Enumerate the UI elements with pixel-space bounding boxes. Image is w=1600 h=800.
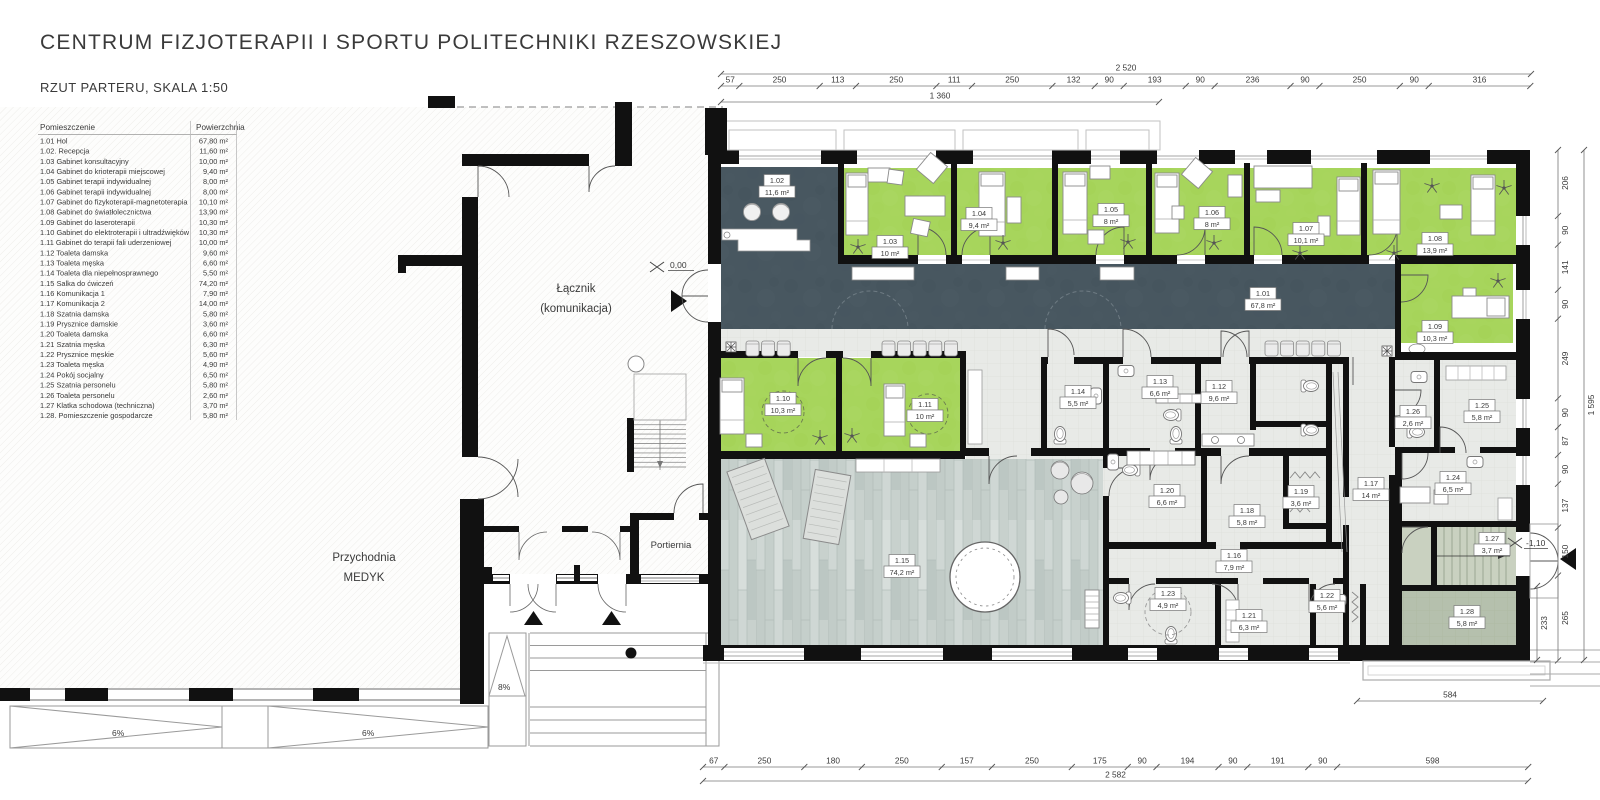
svg-text:5,5 m²: 5,5 m² [1068, 399, 1089, 408]
svg-text:90: 90 [1410, 75, 1420, 85]
svg-text:8 m²: 8 m² [1205, 220, 1220, 229]
svg-text:6%: 6% [112, 728, 125, 738]
svg-text:57: 57 [726, 75, 736, 85]
svg-text:2 520: 2 520 [1116, 63, 1137, 73]
svg-text:74,2 m²: 74,2 m² [890, 568, 915, 577]
svg-text:2,60 m²: 2,60 m² [203, 391, 229, 400]
svg-text:1.14 Toaleta dla niepełnospraw: 1.14 Toaleta dla niepełnosprawnego [40, 269, 158, 278]
svg-text:1.19 Prysznice damskie: 1.19 Prysznice damskie [40, 320, 118, 329]
svg-text:1.04 Gabinet do krioterapii mi: 1.04 Gabinet do krioterapii miejscowej [40, 167, 165, 176]
svg-text:250: 250 [1005, 75, 1019, 85]
svg-text:1.15 Salka do ćwiczeń: 1.15 Salka do ćwiczeń [40, 279, 114, 288]
svg-text:1.26 Toaleta personelu: 1.26 Toaleta personelu [40, 391, 115, 400]
svg-text:10,10 m²: 10,10 m² [199, 198, 229, 207]
svg-text:1.22 Prysznice męskie: 1.22 Prysznice męskie [40, 350, 114, 359]
svg-text:180: 180 [826, 756, 840, 766]
svg-text:1.25 Szatnia personelu: 1.25 Szatnia personelu [40, 381, 116, 390]
svg-text:10,00 m²: 10,00 m² [199, 157, 229, 166]
svg-text:5,80 m²: 5,80 m² [203, 411, 229, 420]
svg-text:250: 250 [757, 756, 771, 766]
svg-text:1.05: 1.05 [1104, 205, 1118, 214]
svg-text:233: 233 [1539, 616, 1549, 630]
svg-text:9,40 m²: 9,40 m² [203, 167, 229, 176]
svg-text:1.16 Komunikacja 1: 1.16 Komunikacja 1 [40, 289, 105, 298]
svg-text:250: 250 [1353, 75, 1367, 85]
svg-text:10,1 m²: 10,1 m² [1294, 236, 1319, 245]
svg-text:316: 316 [1473, 75, 1487, 85]
svg-text:CENTRUM FIZJOTERAPII I SPORTU: CENTRUM FIZJOTERAPII I SPORTU POLITECHNI… [40, 31, 782, 54]
svg-text:1.23 Toaleta męska: 1.23 Toaleta męska [40, 360, 105, 369]
svg-text:1.06 Gabinet terapii indywidua: 1.06 Gabinet terapii indywidualnej [40, 187, 151, 196]
svg-text:1 360: 1 360 [930, 91, 951, 101]
svg-text:1.24: 1.24 [1446, 473, 1460, 482]
svg-text:10 m²: 10 m² [881, 249, 900, 258]
svg-text:90: 90 [1300, 75, 1310, 85]
svg-text:1.11: 1.11 [918, 400, 932, 409]
svg-text:5,60 m²: 5,60 m² [203, 350, 229, 359]
svg-text:1.22: 1.22 [1320, 591, 1334, 600]
svg-text:6,60 m²: 6,60 m² [203, 330, 229, 339]
svg-text:1.06: 1.06 [1205, 208, 1219, 217]
svg-text:1.16: 1.16 [1227, 551, 1241, 560]
svg-text:250: 250 [889, 75, 903, 85]
svg-text:67,8 m²: 67,8 m² [1251, 301, 1276, 310]
svg-text:1.26: 1.26 [1406, 407, 1420, 416]
svg-text:1.28: 1.28 [1460, 607, 1474, 616]
svg-text:150: 150 [1560, 544, 1570, 558]
svg-text:9,4 m²: 9,4 m² [969, 221, 990, 230]
svg-text:90: 90 [1560, 299, 1570, 309]
svg-text:13,9 m²: 13,9 m² [1423, 246, 1448, 255]
svg-text:1.28. Pomieszczenie gospodarcz: 1.28. Pomieszczenie gospodarcze [40, 411, 153, 420]
svg-text:1.15: 1.15 [895, 556, 909, 565]
svg-text:67,80 m²: 67,80 m² [199, 137, 229, 146]
svg-text:1.03: 1.03 [883, 237, 897, 246]
svg-text:8 m²: 8 m² [1104, 217, 1119, 226]
svg-text:584: 584 [1443, 690, 1457, 700]
svg-text:RZUT PARTERU, SKALA 1:50: RZUT PARTERU, SKALA 1:50 [40, 80, 228, 95]
svg-text:90: 90 [1228, 756, 1238, 766]
svg-text:5,8 m²: 5,8 m² [1472, 413, 1493, 422]
svg-text:1.18: 1.18 [1240, 506, 1254, 515]
svg-text:191: 191 [1271, 756, 1285, 766]
svg-text:1.13: 1.13 [1153, 377, 1167, 386]
svg-text:1.19: 1.19 [1294, 487, 1308, 496]
svg-text:9,60 m²: 9,60 m² [203, 248, 229, 257]
svg-text:250: 250 [1025, 756, 1039, 766]
svg-text:1.07 Gabinet do fizykoterapii-: 1.07 Gabinet do fizykoterapii-magnetoter… [40, 198, 188, 207]
svg-text:Powierzchnia: Powierzchnia [196, 123, 245, 132]
svg-text:Pomieszczenie: Pomieszczenie [40, 123, 96, 132]
svg-text:1.17: 1.17 [1364, 479, 1378, 488]
svg-text:1.20 Toaleta damska: 1.20 Toaleta damska [40, 330, 109, 339]
svg-text:157: 157 [960, 756, 974, 766]
svg-text:11,6 m²: 11,6 m² [765, 188, 790, 197]
svg-text:Łącznik: Łącznik [557, 283, 596, 295]
svg-text:10,3 m²: 10,3 m² [1423, 334, 1448, 343]
svg-text:250: 250 [773, 75, 787, 85]
svg-text:8%: 8% [498, 682, 511, 692]
svg-text:5,6 m²: 5,6 m² [1317, 603, 1338, 612]
svg-text:206: 206 [1560, 176, 1570, 190]
svg-text:1.08 Gabinet do światłolecznic: 1.08 Gabinet do światłolecznictwa [40, 208, 152, 217]
svg-text:4,90 m²: 4,90 m² [203, 360, 229, 369]
svg-text:194: 194 [1181, 756, 1195, 766]
svg-text:5,50 m²: 5,50 m² [203, 269, 229, 278]
svg-text:598: 598 [1426, 756, 1440, 766]
svg-text:7,9 m²: 7,9 m² [1224, 563, 1245, 572]
svg-text:1.02: 1.02 [770, 176, 784, 185]
svg-text:87: 87 [1560, 436, 1570, 446]
svg-text:1.02. Recepcja: 1.02. Recepcja [40, 147, 90, 156]
svg-text:1.01 Hol: 1.01 Hol [40, 137, 68, 146]
svg-text:6,5 m²: 6,5 m² [1443, 485, 1464, 494]
svg-text:137: 137 [1560, 498, 1570, 512]
svg-text:1.11 Gabinet do terapii fali u: 1.11 Gabinet do terapii fali uderzeniowe… [40, 238, 172, 247]
svg-text:6,6 m²: 6,6 m² [1150, 389, 1171, 398]
svg-text:90: 90 [1560, 225, 1570, 235]
svg-text:175: 175 [1093, 756, 1107, 766]
svg-text:2,6 m²: 2,6 m² [1403, 419, 1424, 428]
svg-text:5,80 m²: 5,80 m² [203, 309, 229, 318]
svg-text:8,00 m²: 8,00 m² [203, 177, 229, 186]
svg-text:1.21 Szatnia męska: 1.21 Szatnia męska [40, 340, 106, 349]
svg-text:1.27: 1.27 [1485, 534, 1499, 543]
svg-text:Portiernia: Portiernia [651, 540, 692, 551]
svg-text:249: 249 [1560, 351, 1570, 365]
svg-text:1.20: 1.20 [1160, 486, 1174, 495]
svg-text:10 m²: 10 m² [916, 412, 935, 421]
svg-text:1.23: 1.23 [1161, 589, 1175, 598]
svg-text:Przychodnia: Przychodnia [332, 552, 396, 564]
svg-text:2 582: 2 582 [1105, 770, 1126, 780]
svg-text:265: 265 [1560, 611, 1570, 625]
svg-text:250: 250 [895, 756, 909, 766]
svg-text:4,9 m²: 4,9 m² [1158, 601, 1179, 610]
svg-text:90: 90 [1105, 75, 1115, 85]
svg-text:1.25: 1.25 [1475, 401, 1489, 410]
svg-text:5,8 m²: 5,8 m² [1237, 518, 1258, 527]
svg-text:1.24 Pokój socjalny: 1.24 Pokój socjalny [40, 370, 104, 379]
svg-text:MEDYK: MEDYK [344, 572, 385, 584]
svg-text:1.13 Toaleta męska: 1.13 Toaleta męska [40, 259, 105, 268]
svg-text:74,20 m²: 74,20 m² [199, 279, 229, 288]
svg-text:6,60 m²: 6,60 m² [203, 259, 229, 268]
svg-text:1.09 Gabinet do laseroterapii: 1.09 Gabinet do laseroterapii [40, 218, 135, 227]
svg-text:1.21: 1.21 [1242, 611, 1256, 620]
svg-text:1.12 Toaleta damska: 1.12 Toaleta damska [40, 248, 109, 257]
svg-text:141: 141 [1560, 260, 1570, 274]
svg-text:111: 111 [948, 75, 961, 85]
svg-text:3,60 m²: 3,60 m² [203, 320, 229, 329]
svg-text:10,00 m²: 10,00 m² [199, 238, 229, 247]
svg-text:14 m²: 14 m² [1362, 491, 1381, 500]
svg-text:1.14: 1.14 [1071, 387, 1085, 396]
svg-text:8,00 m²: 8,00 m² [203, 187, 229, 196]
svg-text:6,50 m²: 6,50 m² [203, 370, 229, 379]
svg-text:3,70 m²: 3,70 m² [203, 401, 229, 410]
svg-text:1.05 Gabinet terapii indywidua: 1.05 Gabinet terapii indywidualnej [40, 177, 151, 186]
svg-text:6%: 6% [362, 728, 375, 738]
svg-text:1.18 Szatnia damska: 1.18 Szatnia damska [40, 309, 110, 318]
svg-text:7,90 m²: 7,90 m² [203, 289, 229, 298]
svg-text:1.12: 1.12 [1212, 382, 1226, 391]
svg-text:1.01: 1.01 [1256, 289, 1270, 298]
svg-text:1.27 Klatka schodowa (technicz: 1.27 Klatka schodowa (techniczna) [40, 401, 155, 410]
svg-text:10,30 m²: 10,30 m² [199, 218, 229, 227]
svg-text:3,7 m²: 3,7 m² [1482, 546, 1503, 555]
svg-text:1.07: 1.07 [1299, 224, 1313, 233]
svg-text:6,6 m²: 6,6 m² [1157, 498, 1178, 507]
svg-text:90: 90 [1137, 756, 1147, 766]
svg-text:6,3 m²: 6,3 m² [1239, 623, 1260, 632]
svg-text:113: 113 [831, 75, 845, 85]
svg-text:193: 193 [1148, 75, 1162, 85]
svg-text:1.03 Gabinet konsultacyjny: 1.03 Gabinet konsultacyjny [40, 157, 129, 166]
svg-text:11,60 m²: 11,60 m² [199, 147, 228, 156]
svg-text:10,3 m²: 10,3 m² [771, 406, 796, 415]
svg-text:1 595: 1 595 [1586, 394, 1596, 415]
svg-text:90: 90 [1560, 408, 1570, 418]
svg-text:1.08: 1.08 [1428, 234, 1442, 243]
svg-text:10,30 m²: 10,30 m² [199, 228, 229, 237]
svg-text:13,90 m²: 13,90 m² [199, 208, 229, 217]
svg-text:1.09: 1.09 [1428, 322, 1442, 331]
svg-text:5,80 m²: 5,80 m² [203, 381, 229, 390]
svg-text:0,00: 0,00 [670, 260, 687, 270]
svg-text:14,00 m²: 14,00 m² [199, 299, 229, 308]
svg-text:90: 90 [1196, 75, 1206, 85]
svg-text:3,6 m²: 3,6 m² [1291, 499, 1312, 508]
svg-text:5,8 m²: 5,8 m² [1457, 619, 1478, 628]
svg-text:67: 67 [709, 756, 719, 766]
svg-text:9,6 m²: 9,6 m² [1209, 394, 1230, 403]
svg-text:90: 90 [1560, 464, 1570, 474]
svg-text:132: 132 [1067, 75, 1081, 85]
svg-text:1.04: 1.04 [972, 209, 986, 218]
svg-text:1.17 Komunikacja 2: 1.17 Komunikacja 2 [40, 299, 105, 308]
svg-text:6,30 m²: 6,30 m² [203, 340, 229, 349]
svg-text:-1,10: -1,10 [1526, 538, 1546, 548]
svg-text:236: 236 [1246, 75, 1260, 85]
svg-text:(komunikacja): (komunikacja) [540, 303, 612, 315]
svg-text:1.10: 1.10 [776, 394, 790, 403]
svg-text:1.10 Gabinet do elektroterapii: 1.10 Gabinet do elektroterapii i ultradź… [40, 228, 190, 237]
svg-text:90: 90 [1318, 756, 1328, 766]
